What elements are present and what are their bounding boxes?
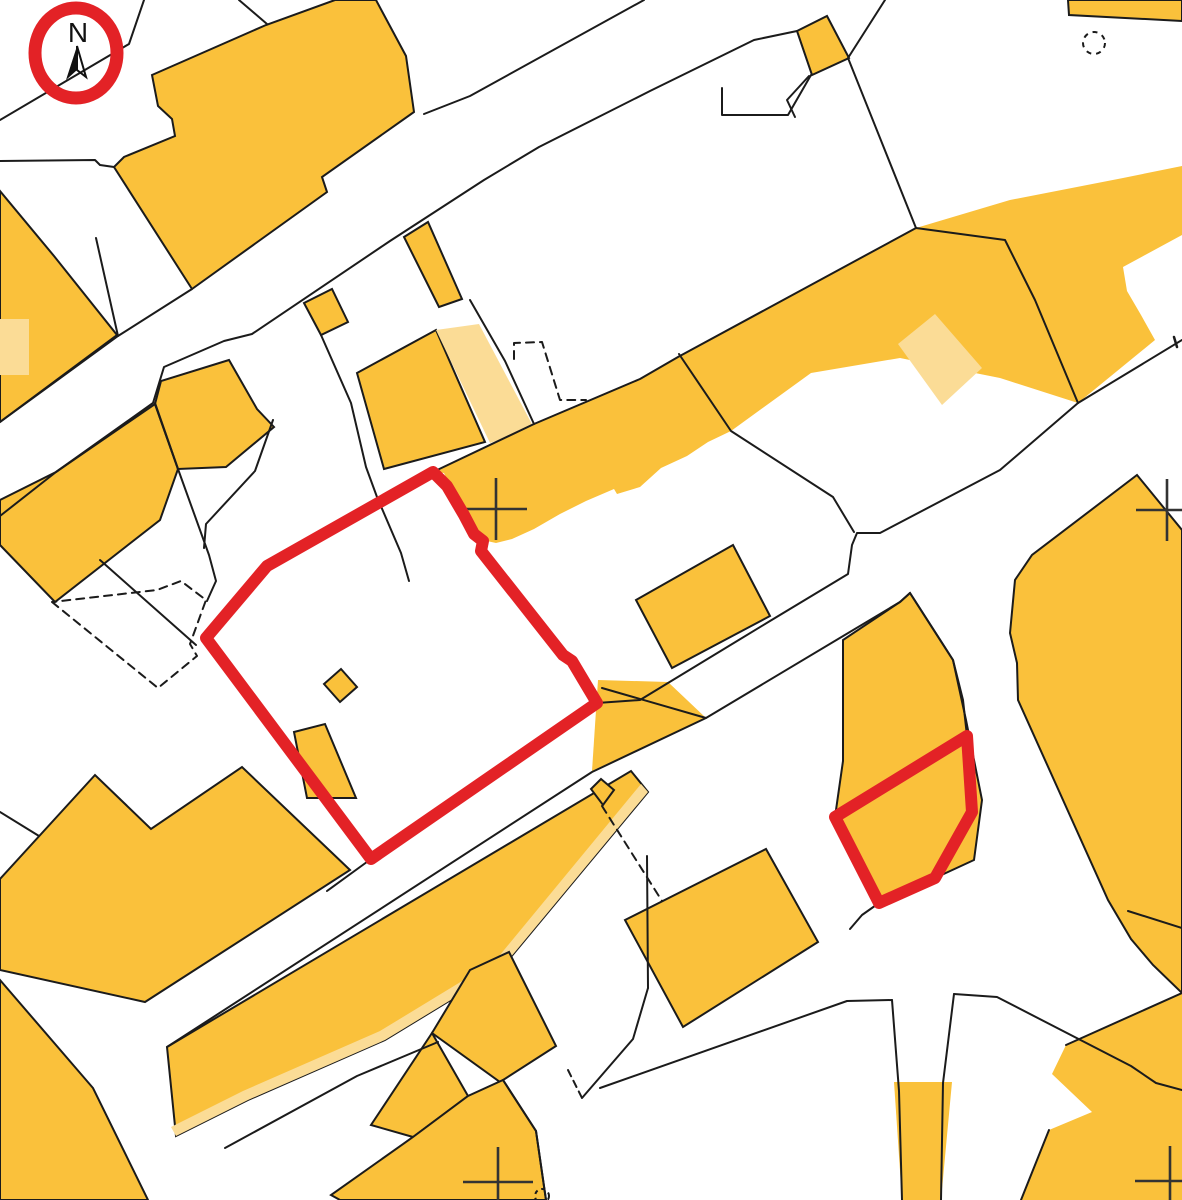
svg-text:N: N (68, 17, 88, 48)
